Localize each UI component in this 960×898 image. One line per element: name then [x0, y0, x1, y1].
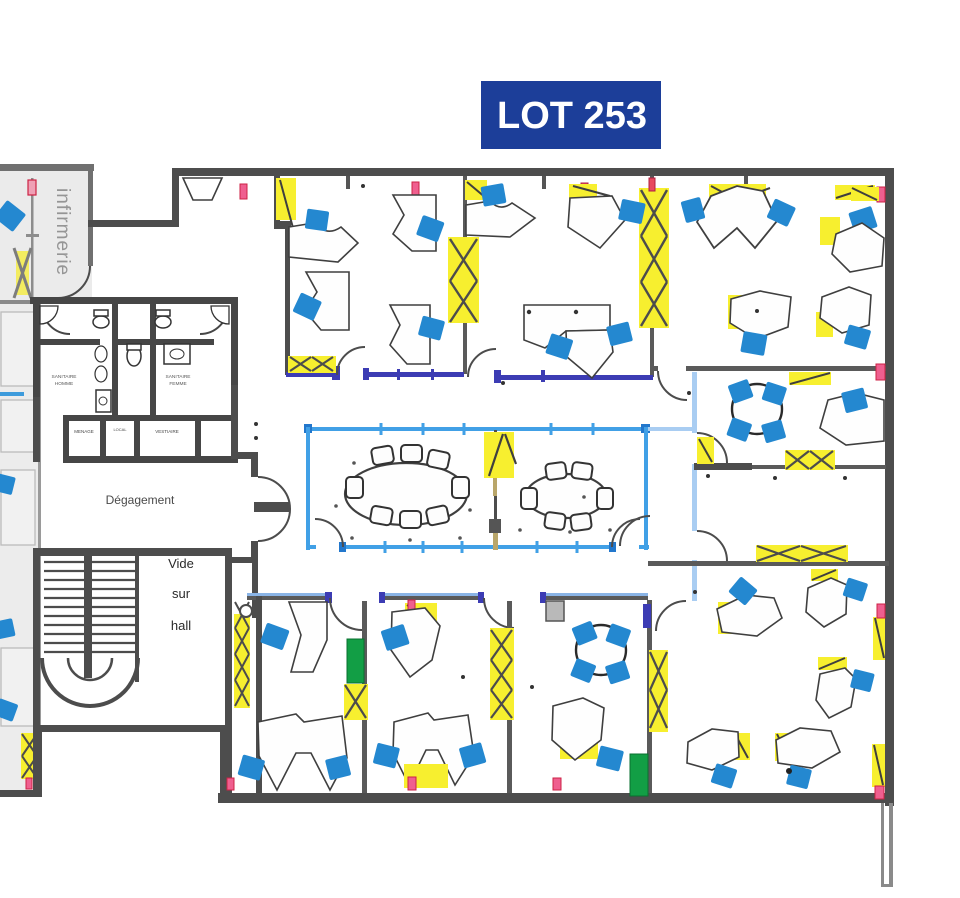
- svg-text:VESTIAIRE: VESTIAIRE: [155, 429, 179, 434]
- svg-text:hall: hall: [171, 618, 191, 633]
- svg-text:MENAGE: MENAGE: [74, 429, 94, 434]
- svg-text:LOCAL: LOCAL: [113, 427, 127, 432]
- svg-text:SANITAIRE: SANITAIRE: [166, 374, 191, 380]
- svg-text:LOT 253: LOT 253: [497, 95, 647, 137]
- svg-text:Dégagement: Dégagement: [106, 493, 175, 507]
- svg-text:sur: sur: [172, 586, 191, 601]
- svg-text:FEMME: FEMME: [169, 381, 186, 387]
- svg-text:SANITAIRE: SANITAIRE: [52, 374, 77, 380]
- svg-text:infirmerie: infirmerie: [52, 188, 73, 276]
- svg-text:Vide: Vide: [168, 556, 194, 571]
- svg-text:HOMME: HOMME: [55, 381, 73, 387]
